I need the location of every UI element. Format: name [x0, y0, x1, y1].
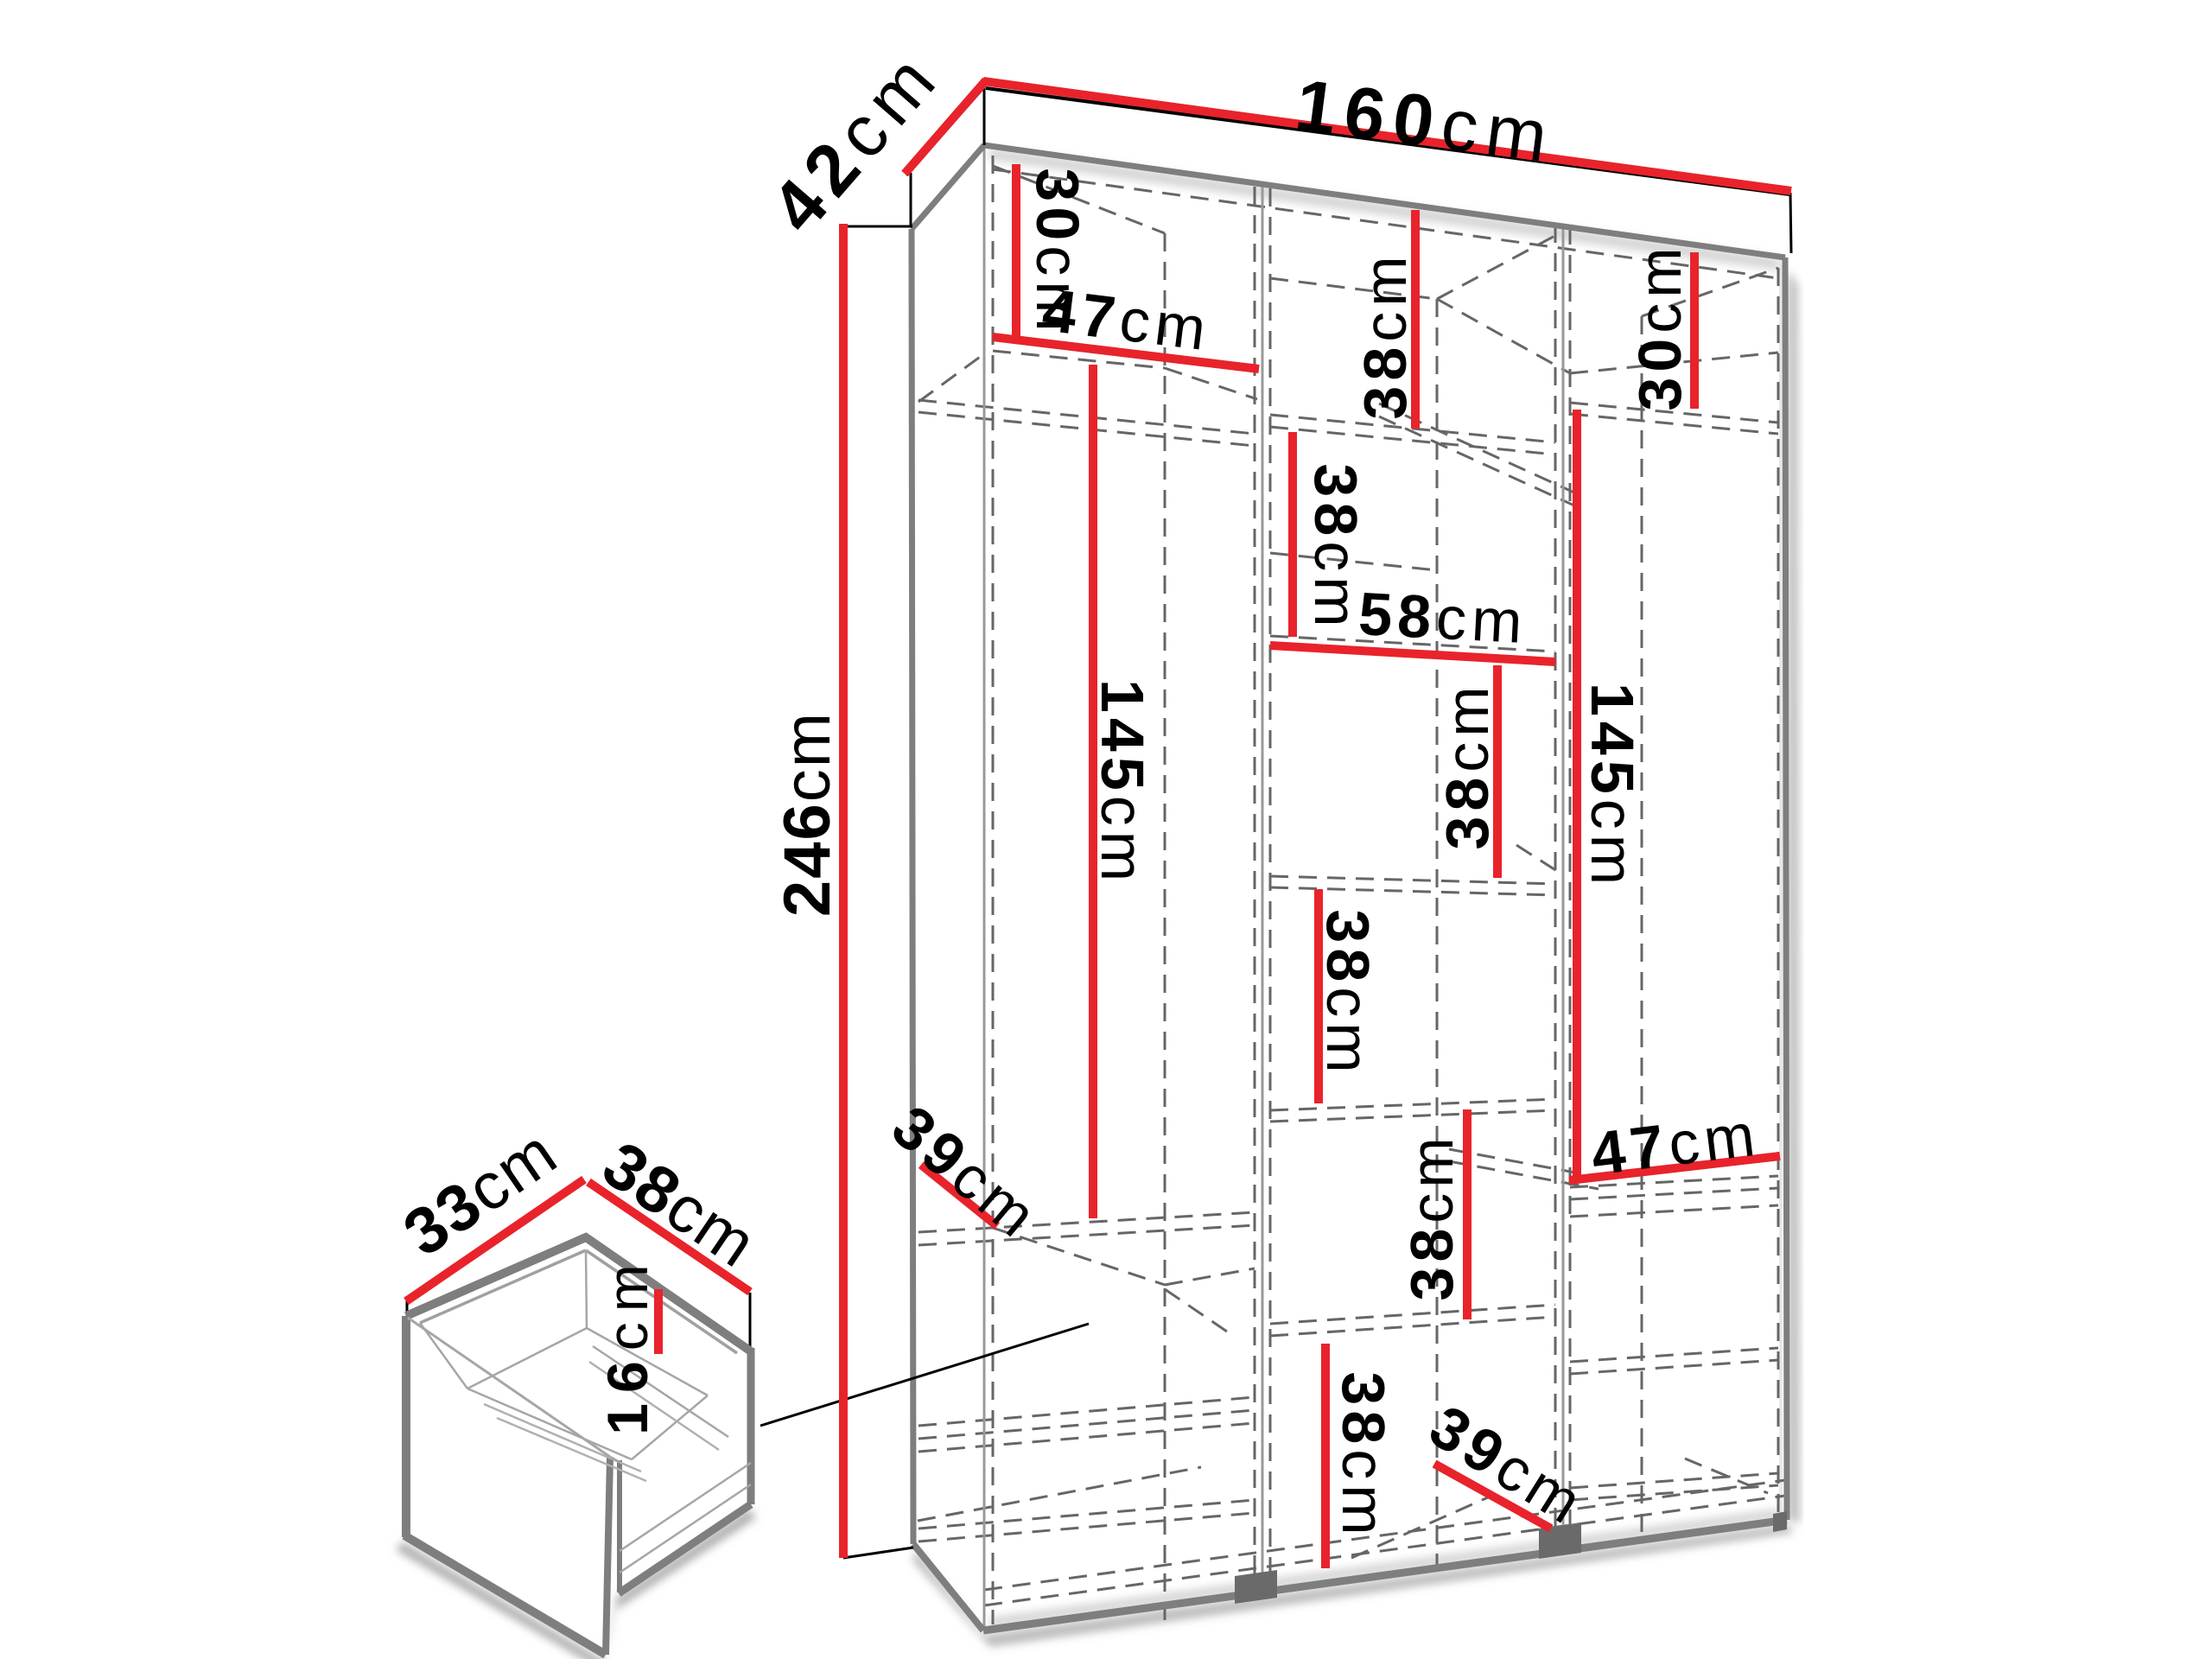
svg-text:47cm: 47cm [1039, 276, 1214, 363]
svg-text:39cm: 39cm [880, 1092, 1052, 1252]
svg-text:38cm: 38cm [1351, 251, 1419, 419]
svg-text:30cm: 30cm [1626, 242, 1694, 410]
svg-text:47cm: 47cm [1587, 1100, 1763, 1187]
svg-text:38cm: 38cm [1330, 1371, 1397, 1540]
svg-text:16cm: 16cm [595, 1254, 659, 1434]
svg-text:58cm: 58cm [1357, 580, 1529, 656]
svg-text:38cm: 38cm [1433, 681, 1501, 849]
svg-text:160cm: 160cm [1291, 64, 1560, 178]
svg-text:246cm: 246cm [771, 711, 844, 917]
svg-text:38cm: 38cm [1398, 1132, 1465, 1300]
svg-text:145cm: 145cm [1089, 679, 1156, 887]
svg-text:145cm: 145cm [1579, 683, 1646, 890]
svg-text:38cm: 38cm [1314, 909, 1382, 1077]
